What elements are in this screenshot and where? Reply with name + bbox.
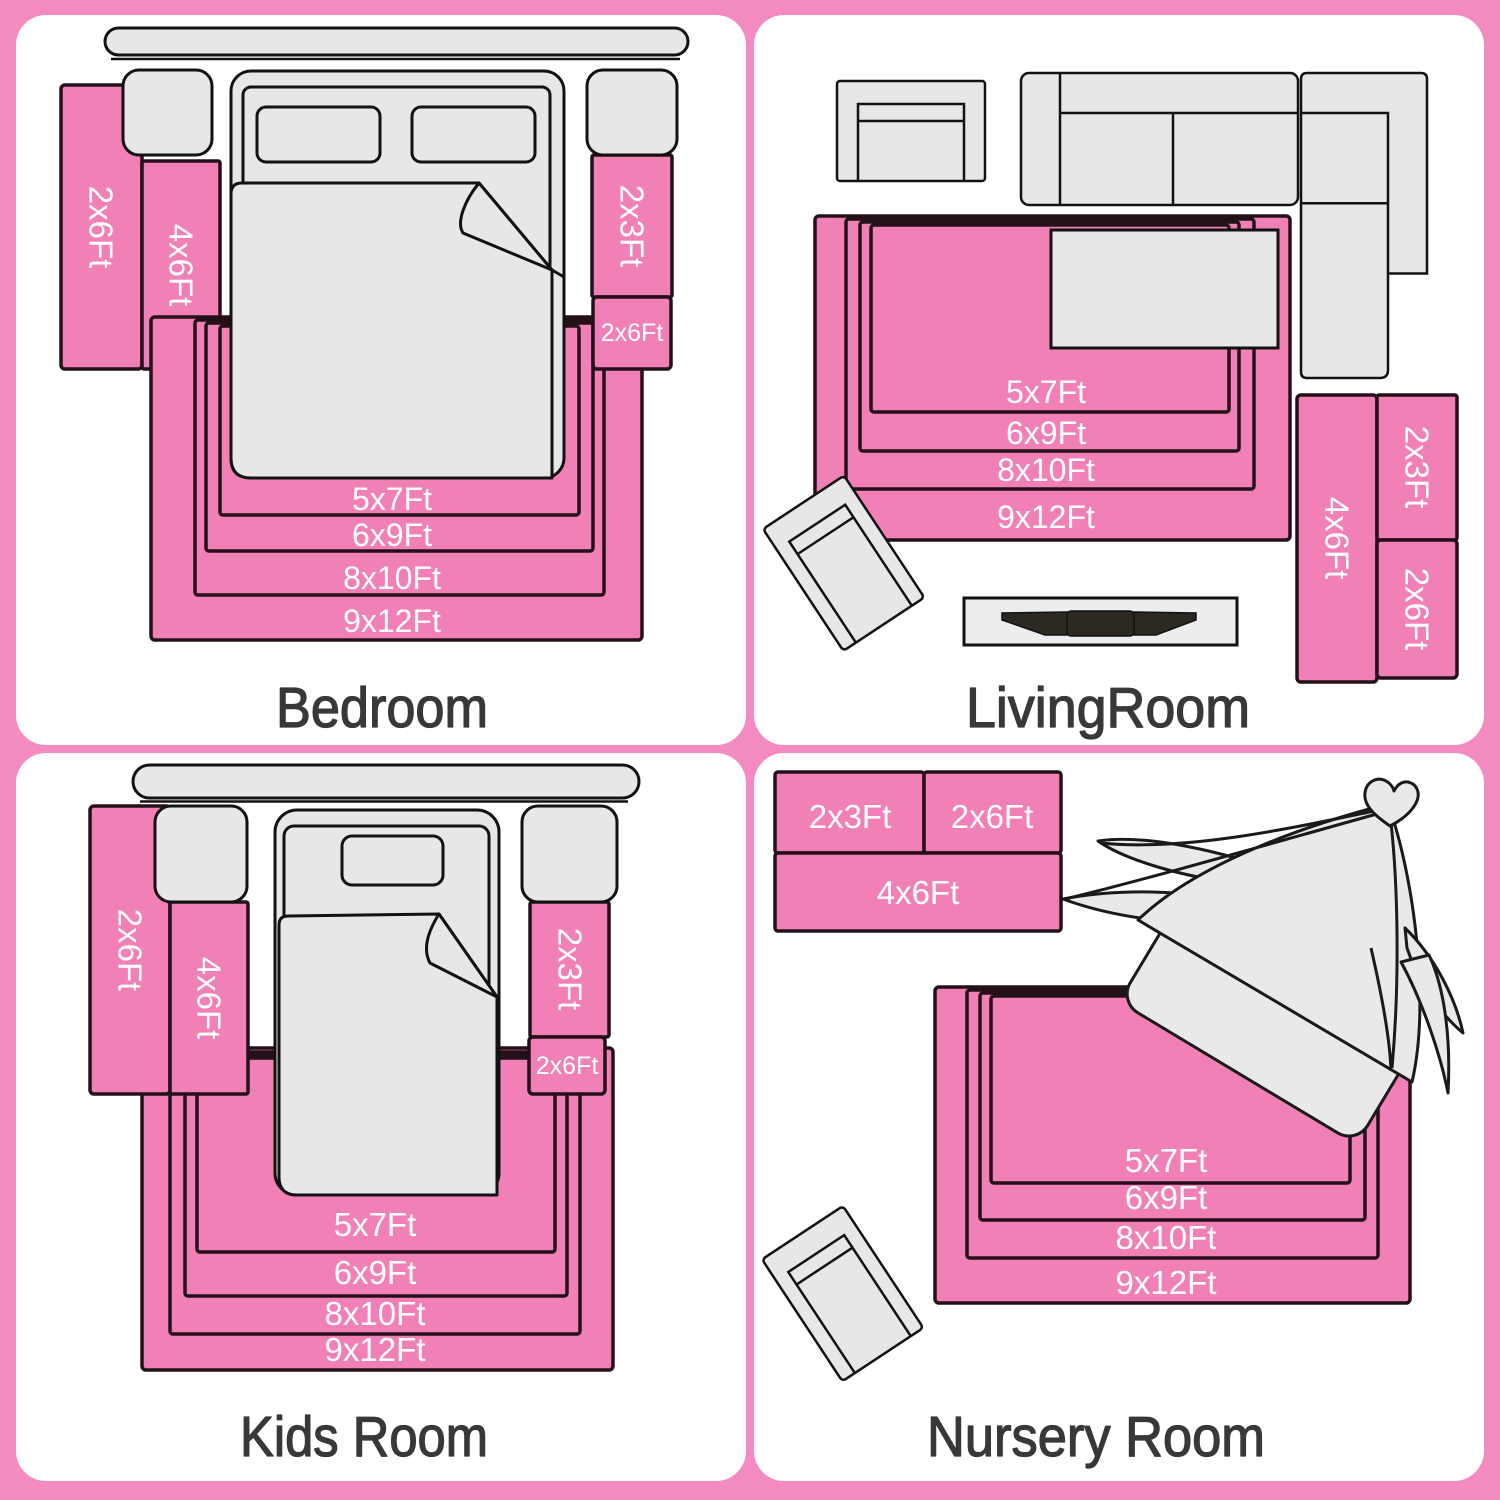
svg-text:2x6Ft: 2x6Ft <box>112 909 149 992</box>
svg-text:2x6Ft: 2x6Ft <box>536 1052 599 1080</box>
svg-text:2x6Ft: 2x6Ft <box>1399 568 1436 651</box>
svg-text:2x6Ft: 2x6Ft <box>601 319 664 347</box>
svg-text:4x6Ft: 4x6Ft <box>191 957 228 1040</box>
svg-text:9x12Ft: 9x12Ft <box>1116 1264 1217 1301</box>
svg-text:6x9Ft: 6x9Ft <box>352 517 432 553</box>
svg-text:5x7Ft: 5x7Ft <box>1006 374 1086 410</box>
svg-text:Nursery Room: Nursery Room <box>927 1405 1265 1469</box>
svg-text:5x7Ft: 5x7Ft <box>334 1206 417 1243</box>
svg-text:8x10Ft: 8x10Ft <box>325 1295 426 1332</box>
svg-text:2x6Ft: 2x6Ft <box>83 186 120 269</box>
svg-text:8x10Ft: 8x10Ft <box>997 452 1095 488</box>
svg-text:5x7Ft: 5x7Ft <box>352 481 432 517</box>
svg-text:2x3Ft: 2x3Ft <box>614 185 651 268</box>
svg-text:2x6Ft: 2x6Ft <box>951 798 1034 835</box>
svg-text:4x6Ft: 4x6Ft <box>877 874 960 911</box>
svg-text:8x10Ft: 8x10Ft <box>343 560 441 596</box>
svg-text:2x3Ft: 2x3Ft <box>1399 426 1436 509</box>
svg-text:4x6Ft: 4x6Ft <box>163 224 200 307</box>
svg-text:LivingRoom: LivingRoom <box>966 676 1250 740</box>
svg-text:5x7Ft: 5x7Ft <box>1125 1142 1208 1179</box>
svg-text:Kids Room: Kids Room <box>240 1405 488 1469</box>
svg-text:9x12Ft: 9x12Ft <box>997 499 1095 535</box>
svg-text:6x9Ft: 6x9Ft <box>1006 415 1086 451</box>
svg-text:9x12Ft: 9x12Ft <box>325 1331 426 1368</box>
svg-text:6x9Ft: 6x9Ft <box>1125 1179 1208 1216</box>
svg-text:2x3Ft: 2x3Ft <box>809 798 892 835</box>
svg-text:2x3Ft: 2x3Ft <box>552 928 589 1011</box>
svg-text:8x10Ft: 8x10Ft <box>1116 1219 1217 1256</box>
svg-text:6x9Ft: 6x9Ft <box>334 1254 417 1291</box>
svg-text:Bedroom: Bedroom <box>276 676 488 740</box>
svg-text:9x12Ft: 9x12Ft <box>343 603 441 639</box>
svg-text:4x6Ft: 4x6Ft <box>1319 497 1356 580</box>
